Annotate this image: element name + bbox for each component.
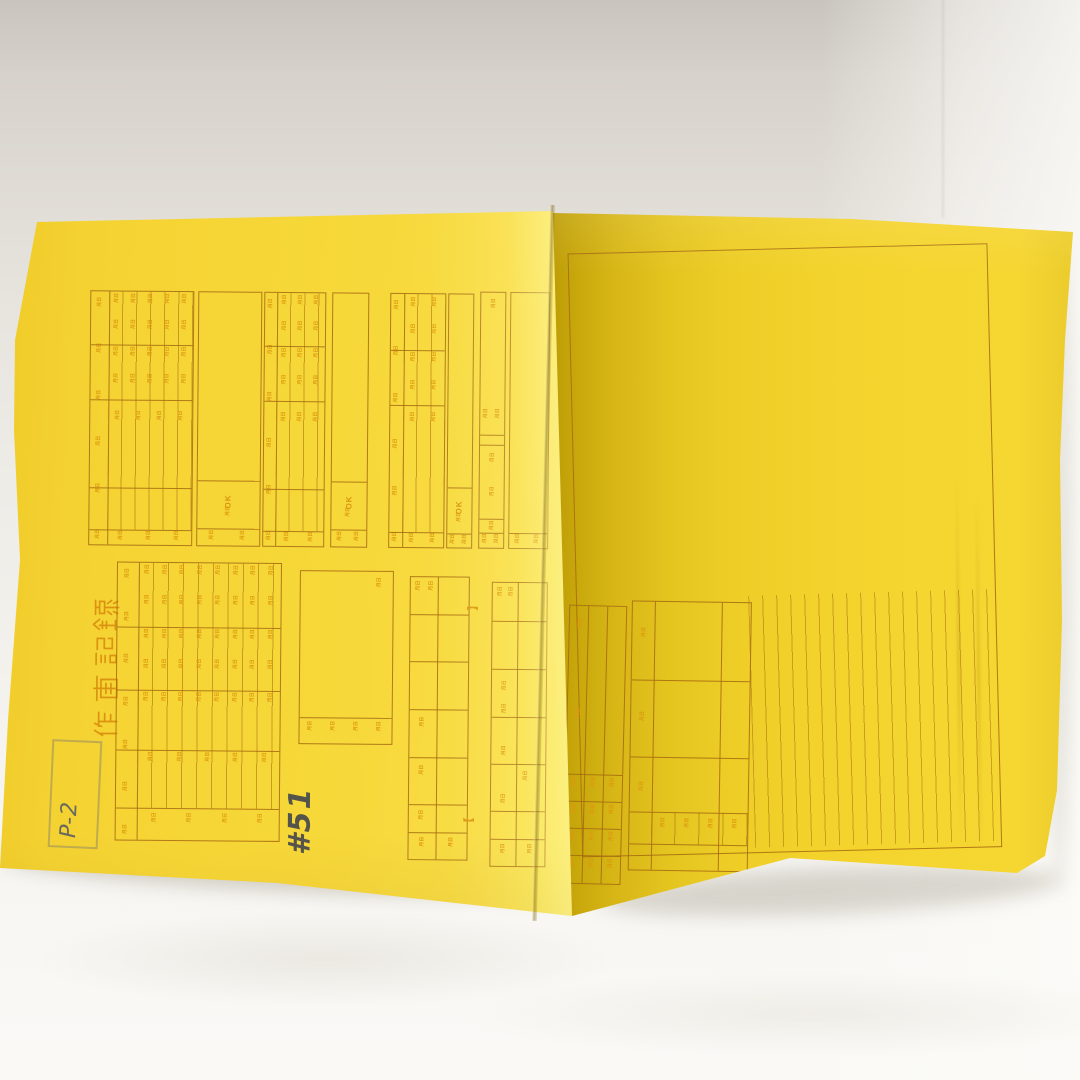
cell-mark: 月日 xyxy=(571,830,576,840)
cell-mark: 月日 xyxy=(450,837,455,847)
cell-mark: 月日 xyxy=(124,739,129,749)
cell-mark: 月日 xyxy=(125,653,130,663)
label-row: 月日月日月日月日 xyxy=(651,820,747,827)
bracket-close-mark: 】 xyxy=(468,600,479,611)
ok-date-cell: OK 月日 xyxy=(447,491,471,531)
cell-mark: 月日 xyxy=(501,843,506,853)
cell-mark: 月日 xyxy=(234,565,239,575)
cell-mark: 月日 xyxy=(378,721,383,731)
cell-mark: 月日 xyxy=(165,373,170,383)
cell-mark: 月日 xyxy=(144,658,149,668)
date-row: 月日月日月日月日月日 xyxy=(109,375,193,381)
cell-mark: 月日 xyxy=(355,721,360,731)
divider xyxy=(197,528,259,530)
cell-mark: 月日 xyxy=(421,837,426,847)
date-row: 月日月日月日 xyxy=(277,323,325,328)
cell-mark: 月日 xyxy=(609,804,614,814)
cell-mark: 月日 xyxy=(457,512,462,522)
divider xyxy=(601,607,609,884)
cell-mark: 月日 xyxy=(181,595,186,605)
cell-mark: 月日 xyxy=(420,765,425,775)
cell-mark: 月日 xyxy=(314,375,319,385)
handwritten-part-code: P-2 xyxy=(58,746,86,839)
cell-mark: 月日 xyxy=(147,530,152,540)
label-row: 月日月日月日月日 xyxy=(137,815,279,821)
cell-mark: 月日 xyxy=(355,531,360,541)
cell-mark: 月日 xyxy=(241,530,246,540)
cell-mark: 月日 xyxy=(430,533,435,543)
cell-mark: 月日 xyxy=(179,411,184,421)
cell-mark: 月日 xyxy=(233,629,238,639)
cell-mark: 月日 xyxy=(182,294,187,304)
cell-mark: 月日 xyxy=(215,692,220,702)
cell-mark: 月日 xyxy=(124,824,129,834)
cell-mark: 月日 xyxy=(299,321,304,331)
cell-mark: 月日 xyxy=(116,410,121,420)
label-row: 月日月日 xyxy=(409,839,467,845)
cell-mark: 月日 xyxy=(309,721,314,731)
cell-mark: 月日 xyxy=(216,629,221,639)
cell-mark: 月日 xyxy=(509,586,514,596)
cell-mark: 月日 xyxy=(180,659,185,669)
cell-mark: 月日 xyxy=(498,586,503,596)
cell-mark: 月日 xyxy=(182,347,187,357)
cell-mark: 月日 xyxy=(709,818,714,828)
cut-info-table: 月日 月日 月日 月日月日月日月日 xyxy=(628,600,752,872)
cell-mark: 月日 xyxy=(269,629,274,639)
cell-mark: 月日 xyxy=(314,348,319,358)
cell-mark: 月日 xyxy=(198,595,203,605)
divider xyxy=(435,577,438,859)
cell-mark: 月日 xyxy=(309,532,314,542)
cell-mark: 月日 xyxy=(131,373,136,383)
cell-mark: 月日 xyxy=(163,564,168,574)
cell-mark: 月日 xyxy=(573,776,578,786)
cell-mark: 月日 xyxy=(162,658,167,668)
cell-mark: 月日 xyxy=(412,324,417,334)
cell-mark: 月日 xyxy=(148,373,153,383)
record-table-block: OK 月日 月日月日 xyxy=(330,292,369,547)
main-record-grid: 月日月日月日月日月日月日月日 月日月日月日月日月日月日月日月日 月日月日月日月日… xyxy=(115,562,282,842)
cell-mark: 月日 xyxy=(215,659,220,669)
date-row: 月日月日月日月日 xyxy=(108,412,192,418)
cell-mark: 月日 xyxy=(182,374,187,384)
cell-mark: 月日 xyxy=(285,531,290,541)
cell-mark: 月日 xyxy=(298,348,303,358)
cell-mark: 月日 xyxy=(163,594,168,604)
cell-mark: 月日 xyxy=(251,659,256,669)
cell-mark: 月日 xyxy=(395,299,400,309)
cell-mark: 月日 xyxy=(432,324,437,334)
cell-mark: 月日 xyxy=(589,858,594,868)
cell-mark: 月日 xyxy=(571,857,576,867)
cell-mark: 月日 xyxy=(115,319,120,329)
cell-mark: 月日 xyxy=(181,565,186,575)
divider xyxy=(480,435,504,436)
cell-mark: 月日 xyxy=(685,818,690,828)
divider xyxy=(116,808,279,810)
cell-mark: 月日 xyxy=(501,793,506,803)
cell-mark: 月日 xyxy=(432,297,437,307)
divider xyxy=(448,487,472,488)
cell-mark: 月日 xyxy=(251,692,256,702)
divider xyxy=(515,583,518,866)
cell-mark: 月日 xyxy=(251,629,256,639)
cell-mark: 月日 xyxy=(233,659,238,669)
cell-mark: 月日 xyxy=(175,531,180,541)
date-row: 月日月日 xyxy=(404,382,445,387)
cell-mark: 月日 xyxy=(412,297,417,307)
cell-mark: 月日 xyxy=(149,751,154,761)
label-row: 月日月日月日 xyxy=(107,532,191,538)
cell-mark: 月日 xyxy=(149,319,154,329)
cell-mark: 月日 xyxy=(187,813,192,823)
cell-mark: 月日 xyxy=(148,346,153,356)
cell-mark: 月日 xyxy=(145,564,150,574)
date-row: 月日月日月日月日月日 xyxy=(109,321,193,327)
label-row: 月日月日 xyxy=(275,534,323,539)
cell-mark: 月日 xyxy=(125,696,130,706)
divider xyxy=(410,661,468,663)
memo-box: 月日 月日月日月日月日 xyxy=(298,570,394,745)
cell-mark: 月日 xyxy=(234,752,239,762)
cell-mark: 月日 xyxy=(270,565,275,575)
date-row: 月日月日月日 xyxy=(564,860,620,866)
cell-mark: 月日 xyxy=(432,380,437,390)
cell-mark: 月日 xyxy=(609,831,614,841)
label-row: 月日月日 xyxy=(402,535,443,540)
cell-mark: 月日 xyxy=(642,627,647,637)
cell-mark: 月日 xyxy=(661,817,666,827)
date-row: 月日月日月日 xyxy=(565,833,621,839)
cell-mark: 月日 xyxy=(524,771,529,781)
pencil-box: P-2 xyxy=(48,739,103,849)
cell-mark: 月日 xyxy=(267,437,272,447)
cell-mark: 月日 xyxy=(124,781,129,791)
cell-mark: 月日 xyxy=(535,534,540,544)
cell-mark: 月日 xyxy=(377,577,382,587)
folder-left-page: 月日月日月日月日月日月日 月日月日月日月日月日 月日月日月日月日月日 月日月日月… xyxy=(0,205,574,921)
date-row: 月日月日 xyxy=(403,414,444,419)
cell-mark: 月日 xyxy=(269,659,274,669)
cell-mark: 月日 xyxy=(226,506,231,516)
cell-mark: 月日 xyxy=(394,439,399,449)
date-row: 月日月日 xyxy=(404,354,445,359)
date-row: 月日月日月日 xyxy=(277,350,325,355)
divider xyxy=(411,614,469,616)
cell-mark: 月日 xyxy=(394,485,399,495)
cell-mark: 月日 xyxy=(502,703,507,713)
divider xyxy=(632,679,750,682)
cell-mark: 月日 xyxy=(234,595,239,605)
cell-mark: 月日 xyxy=(451,534,456,544)
cell-mark: 月日 xyxy=(263,752,268,762)
cell-mark: 月日 xyxy=(182,320,187,330)
right-page-print: 月日 月日 月日月日月日 月日月日月日 月日月日月日 月日月日月日 月日 月日 xyxy=(548,202,1080,923)
cell-mark: 月日 xyxy=(177,752,182,762)
label-row: 月日月日 xyxy=(479,536,503,541)
date-row: 月日月日 xyxy=(404,326,445,331)
cell-mark: 月日 xyxy=(269,595,274,605)
cell-mark: 月日 xyxy=(502,680,507,690)
date-row: 月日月日 xyxy=(404,299,445,304)
cell-mark: 月日 xyxy=(484,408,489,418)
cell-mark: 月日 xyxy=(429,581,434,591)
cell-mark: 月日 xyxy=(463,534,468,544)
cell-mark: 月日 xyxy=(431,412,436,422)
cell-mark: 月日 xyxy=(125,611,130,621)
divider xyxy=(582,606,590,883)
cell-mark: 月日 xyxy=(332,721,337,731)
record-table-block: 月日月日月日月日月日月日 月日月日月日月日月日 月日月日月日月日月日 月日月日月… xyxy=(88,290,194,546)
date-row: 月日月日月日月日月日 xyxy=(109,295,193,301)
date-row: 月日月日月日 xyxy=(277,377,325,382)
cell-mark: 月日 xyxy=(315,295,320,305)
cell-mark: 月日 xyxy=(591,804,596,814)
cell-mark: 月日 xyxy=(516,533,521,543)
handwritten-episode-number: #51 xyxy=(285,783,320,855)
cell-mark: 月日 xyxy=(492,298,497,308)
cell-mark: 月日 xyxy=(97,390,102,400)
cell-mark: 月日 xyxy=(411,412,416,422)
cell-mark: 月日 xyxy=(144,691,149,701)
backdrop-crease xyxy=(942,0,944,218)
folder-right-page: 月日 月日 月日月日月日 月日月日月日 月日月日月日 月日月日月日 月日 月日 xyxy=(552,205,1080,921)
cell-mark: 月日 xyxy=(419,810,424,820)
cell-mark: 月日 xyxy=(299,295,304,305)
record-table-block: OK 月日 月日月日 xyxy=(196,291,262,547)
cell-mark: 月日 xyxy=(591,777,596,787)
cell-mark: 月日 xyxy=(197,692,202,702)
cell-mark: 月日 xyxy=(490,452,495,462)
cell-mark: 月日 xyxy=(420,717,425,727)
cell-mark: 月日 xyxy=(411,380,416,390)
date-row: 月日月日 xyxy=(495,589,518,594)
record-table-block: 月日 月日月日 月日 月日 月日 月日月日 xyxy=(478,292,506,549)
cell-mark: 月日 xyxy=(258,813,263,823)
divider xyxy=(300,717,392,719)
record-table-block: 月日月日月日月日月日月日 月日月日月日 月日月日月日 月日月日月日 月日月日月日… xyxy=(262,292,326,548)
cell-mark: 月日 xyxy=(132,319,137,329)
divider xyxy=(409,757,467,759)
cell-mark: 月日 xyxy=(223,813,228,823)
cell-mark: 月日 xyxy=(394,392,399,402)
cell-mark: 月日 xyxy=(315,321,320,331)
cell-mark: 月日 xyxy=(251,595,256,605)
cell-mark: 月日 xyxy=(490,520,495,530)
divider xyxy=(492,621,546,622)
side-record-table: 月日 月日 月日月日月日 月日月日月日 月日月日月日 月日月日月日 xyxy=(562,605,627,885)
cell-mark: 月日 xyxy=(576,707,581,717)
divider xyxy=(409,804,467,806)
cell-mark: 月日 xyxy=(269,298,274,308)
label-row: 月日月日 xyxy=(197,532,259,538)
cell-mark: 月日 xyxy=(337,531,342,541)
divider xyxy=(332,481,367,482)
cell-mark: 月日 xyxy=(572,803,577,813)
cell-mark: 月日 xyxy=(199,565,204,575)
cell-mark: 月日 xyxy=(483,533,488,543)
cell-mark: 月日 xyxy=(180,629,185,639)
cell-mark: 月日 xyxy=(590,831,595,841)
cell-mark: 月日 xyxy=(282,374,287,384)
cell-mark: 月日 xyxy=(145,594,150,604)
cell-mark: 月日 xyxy=(162,691,167,701)
divider xyxy=(630,756,748,759)
date-row: 月日月日 xyxy=(480,411,504,416)
cell-mark: 月日 xyxy=(216,565,221,575)
date-row: 月日月日月日月日月日 xyxy=(109,348,193,354)
cell-mark: 月日 xyxy=(132,293,137,303)
cell-mark: 月日 xyxy=(578,617,583,627)
label-row: 月日月日 xyxy=(447,536,471,541)
date-row: 月日月日月日 xyxy=(565,806,621,812)
label-row: 月日月日 xyxy=(331,533,366,538)
cell-mark: 月日 xyxy=(180,692,185,702)
cell-mark: 月日 xyxy=(252,565,257,575)
divider xyxy=(409,832,467,834)
cell-mark: 月日 xyxy=(131,346,136,356)
cell-mark: 月日 xyxy=(137,410,142,420)
cell-mark: 月日 xyxy=(432,352,437,362)
ok-date-cell: OK 月日 xyxy=(197,484,259,527)
record-table-block: OK 月日 月日月日 xyxy=(446,293,474,548)
date-row: 月日月日月日 xyxy=(277,297,325,302)
photo-of-yellow-record-folder: 月日月日月日月日月日月日 月日月日月日月日月日 月日月日月日月日月日 月日月日月… xyxy=(0,0,1080,1080)
ok-date-cell: OK 月日 xyxy=(331,485,366,527)
cell-mark: 月日 xyxy=(490,486,495,496)
cell-mark: 月日 xyxy=(115,346,120,356)
cell-mark: 月日 xyxy=(165,319,170,329)
record-table-block: 月日月日月日月日月日月日 月日月日 月日月日 月日月日 月日月日 月日月日 月日… xyxy=(388,293,446,548)
cell-mark: 月日 xyxy=(216,595,221,605)
cell-mark: 月日 xyxy=(233,692,238,702)
cell-mark: 月日 xyxy=(210,530,215,540)
date-row: 月日月日月日 xyxy=(276,414,324,419)
cell-mark: 月日 xyxy=(268,391,273,401)
divider xyxy=(410,709,468,711)
cell-mark: 月日 xyxy=(115,293,120,303)
bracket-open-mark: 【 xyxy=(464,818,475,829)
cell-mark: 月日 xyxy=(206,752,211,762)
cell-mark: 月日 xyxy=(298,375,303,385)
cell-mark: 月日 xyxy=(733,819,738,829)
cell-mark: 月日 xyxy=(282,347,287,357)
cell-mark: 月日 xyxy=(98,297,103,307)
cell-mark: 月日 xyxy=(412,352,417,362)
cell-mark: 月日 xyxy=(283,294,288,304)
cell-mark: 月日 xyxy=(410,533,415,543)
stacked-cell-column: 月日月日 月日 月日 月日 月日月日 xyxy=(407,576,469,861)
cell-mark: 月日 xyxy=(166,293,171,303)
cell-mark: 月日 xyxy=(314,412,319,422)
cell-mark: 月日 xyxy=(97,436,102,446)
cell-mark: 月日 xyxy=(198,629,203,639)
cell-mark: 月日 xyxy=(152,812,157,822)
cell-mark: 月日 xyxy=(198,659,203,669)
cell-mark: 月日 xyxy=(641,711,646,721)
cell-mark: 月日 xyxy=(162,628,167,638)
cell-mark: 月日 xyxy=(165,346,170,356)
divider xyxy=(198,480,260,482)
cell-mark: 月日 xyxy=(639,781,644,791)
cell-mark: 月日 xyxy=(114,373,119,383)
cell-mark: 月日 xyxy=(126,568,131,578)
cell-mark: 月日 xyxy=(495,533,500,543)
label-row: 月日月日月日月日 xyxy=(300,723,392,729)
cell-mark: 月日 xyxy=(608,858,613,868)
cell-mark: 月日 xyxy=(119,530,124,540)
cell-mark: 月日 xyxy=(283,320,288,330)
cell-mark: 月日 xyxy=(298,412,303,422)
divider xyxy=(480,445,504,446)
cell-mark: 月日 xyxy=(502,745,507,755)
cell-mark: 月日 xyxy=(496,408,501,418)
cell-mark: 月日 xyxy=(158,410,163,420)
date-row: 月日月日月日 xyxy=(566,779,622,785)
cell-mark: 月日 xyxy=(282,411,287,421)
date-row: 月日月日 xyxy=(413,583,438,588)
cell-mark: 月日 xyxy=(346,507,351,517)
left-page-print: 月日月日月日月日月日月日 月日月日月日月日月日 月日月日月日月日月日 月日月日月… xyxy=(0,203,577,924)
cell-mark: 月日 xyxy=(149,293,154,303)
cell-mark: 月日 xyxy=(145,628,150,638)
cell-mark: 月日 xyxy=(417,581,422,591)
cell-mark: 月日 xyxy=(610,777,615,787)
cell-mark: 月日 xyxy=(268,692,273,702)
